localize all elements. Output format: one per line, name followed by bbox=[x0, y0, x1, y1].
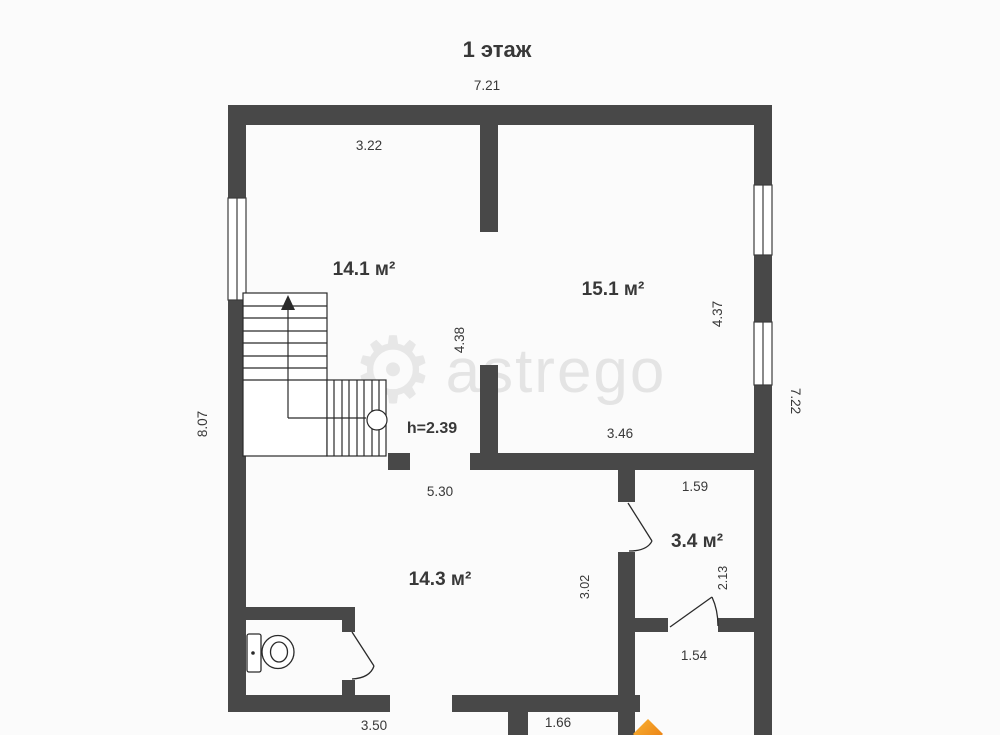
brand-diamond-logo bbox=[633, 719, 663, 735]
floor-plan-page: ⚙ ⚙ astrego bbox=[0, 0, 1000, 735]
dim-right-total-height: 7.22 bbox=[788, 388, 803, 414]
dim-bath-height: 2.13 bbox=[716, 566, 730, 590]
wall-inner-vertical-lower bbox=[480, 365, 498, 455]
doors bbox=[352, 503, 718, 679]
dim-hall-width: 5.30 bbox=[427, 484, 453, 499]
wall-bottom-right bbox=[452, 695, 640, 712]
dim-porch-width: 1.66 bbox=[545, 715, 571, 730]
wall-wc-top bbox=[246, 607, 355, 620]
dim-stair-room-width: 3.22 bbox=[356, 138, 382, 153]
toilet-icon bbox=[247, 634, 294, 672]
wall-porch-stub bbox=[508, 712, 528, 735]
door-bath-left bbox=[628, 503, 652, 551]
stair-pole bbox=[367, 410, 387, 430]
wall-bath-bottom-left bbox=[635, 618, 668, 632]
window-left bbox=[228, 198, 246, 300]
dim-hall-height: 3.02 bbox=[578, 575, 592, 599]
room-area-stair-room: 14.1 м² bbox=[333, 259, 396, 280]
wall-wc-right-lower bbox=[342, 680, 355, 695]
wall-bottom-left bbox=[228, 695, 390, 712]
wall-bath-left-upper bbox=[618, 470, 635, 502]
dim-stair-wall-height: 4.38 bbox=[452, 327, 467, 353]
wall-right-lower bbox=[754, 385, 772, 735]
floor-title: 1 этаж bbox=[463, 37, 532, 62]
wall-right-upper bbox=[754, 105, 772, 185]
floor-plan-drawing: ⚙ ⚙ astrego bbox=[0, 0, 1000, 735]
wall-middle-stub bbox=[388, 453, 410, 470]
wall-bath-bottom-right bbox=[718, 618, 754, 632]
dim-bath-width: 1.59 bbox=[682, 479, 708, 494]
wall-bath-left-lower bbox=[618, 552, 635, 735]
dim-living-room-height: 4.37 bbox=[710, 301, 725, 327]
door-bath-bottom bbox=[670, 597, 718, 627]
door-wc bbox=[352, 632, 374, 679]
wall-wc-right-upper bbox=[342, 620, 355, 632]
wall-middle-main bbox=[470, 453, 772, 470]
wall-left-upper bbox=[228, 105, 246, 198]
stair-height-note: h=2.39 bbox=[407, 420, 457, 437]
dim-left-total-height: 8.07 bbox=[195, 411, 210, 437]
wall-inner-vertical-upper bbox=[480, 125, 498, 232]
dim-entry-width: 1.54 bbox=[681, 648, 708, 663]
dim-living-room-width: 3.46 bbox=[607, 426, 633, 441]
watermark-text: astrego bbox=[446, 337, 667, 406]
room-area-living-room: 15.1 м² bbox=[582, 279, 645, 300]
dim-building-width-top: 7.21 bbox=[474, 78, 500, 93]
wall-top bbox=[228, 105, 772, 125]
room-area-bath-room: 3.4 м² bbox=[671, 531, 723, 552]
wall-right-middle bbox=[754, 255, 772, 322]
window-right-upper bbox=[754, 185, 772, 255]
dim-bottom-left-width: 3.50 bbox=[361, 718, 387, 733]
window-right-lower bbox=[754, 322, 772, 385]
room-area-hall-room: 14.3 м² bbox=[409, 569, 472, 590]
